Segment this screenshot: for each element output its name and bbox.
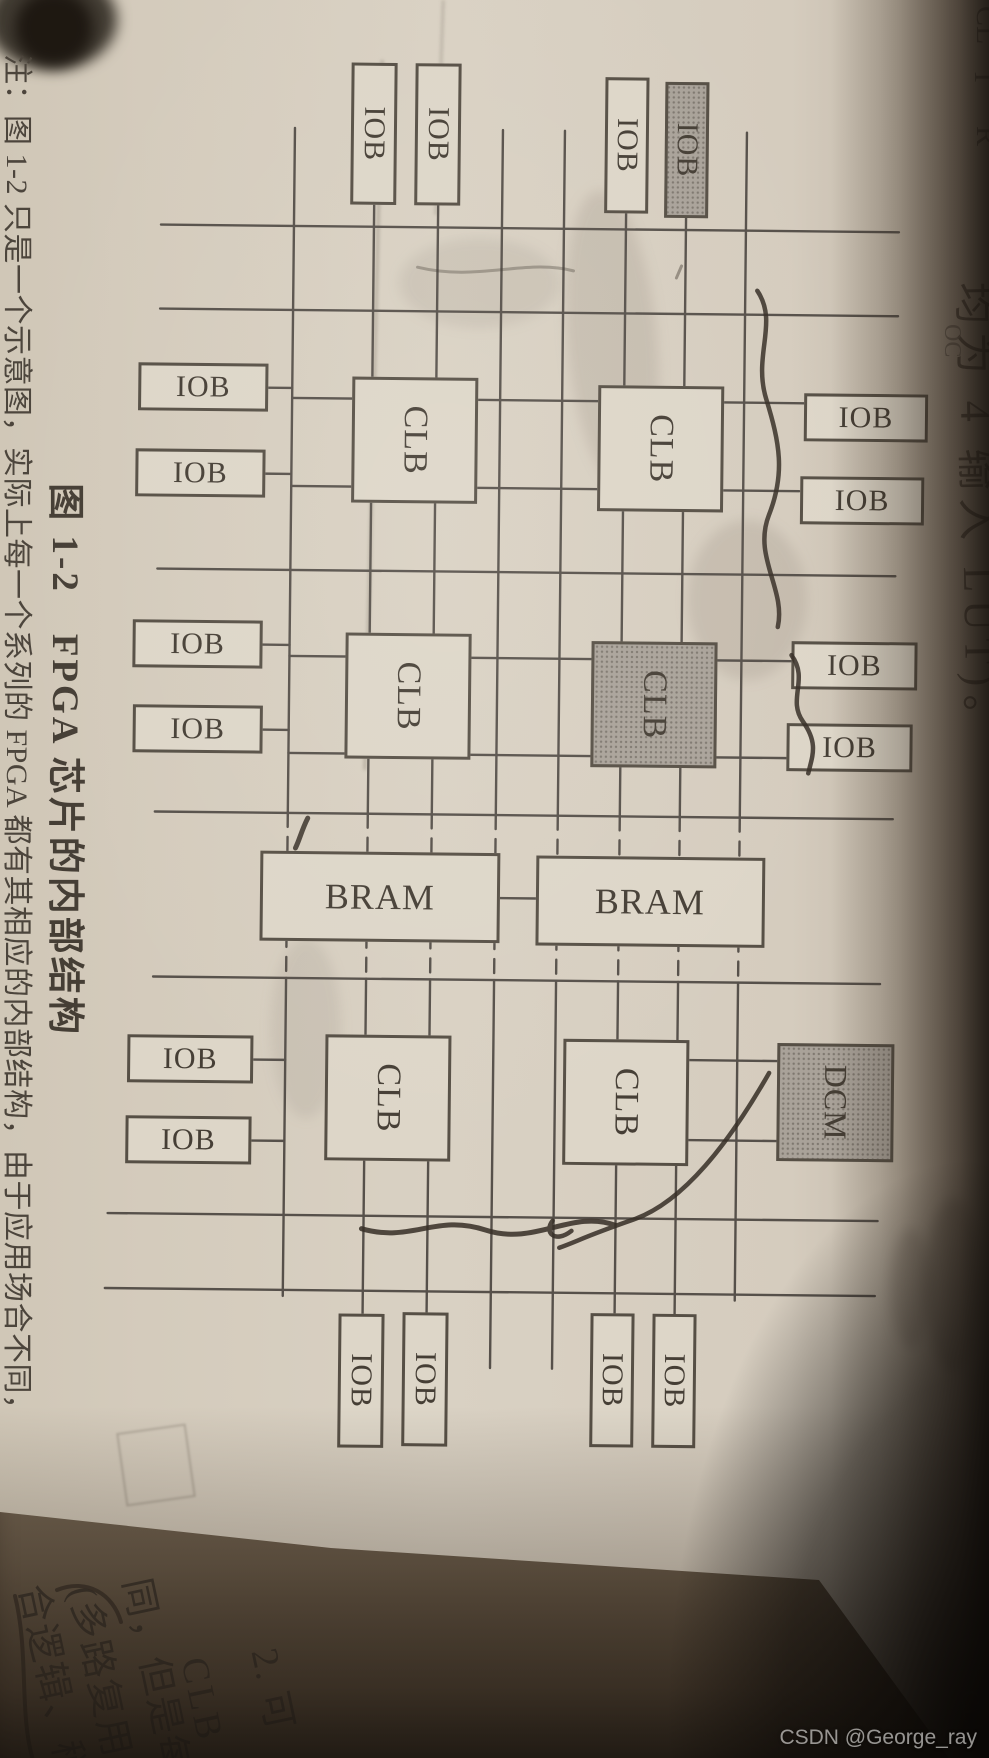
- pen-scribble: [417, 266, 573, 274]
- cutoff-text-fragment: CL: [969, 6, 989, 44]
- cutoff-text-fragment: T: [967, 68, 989, 86]
- cutoff-text-fragment: R: [969, 126, 989, 146]
- pen-squiggle: [754, 291, 783, 627]
- diagram: IOBIOBIOBIOBIOBIOBIOBIOBIOBIOBIOBIOBIOBI…: [0, 0, 989, 1758]
- pen-squiggle: [790, 655, 814, 773]
- book-page: IOBIOBIOBIOBIOBIOBIOBIOBIOBIOBIOBIOBIOBI…: [0, 0, 989, 1758]
- figure-note: 注：图 1-2 只是一个示意图，实际上每一个系列的 FPGA 都有其相应的内部结…: [0, 54, 42, 1425]
- pen-squiggle: [361, 1219, 615, 1236]
- book-photo: IOBIOBIOBIOBIOBIOBIOBIOBIOBIOBIOBIOBIOBI…: [0, 0, 989, 1758]
- cutoff-text-fragment: OC: [938, 324, 965, 357]
- pen-mark: [295, 818, 307, 848]
- watermark: CSDN @George_ray: [779, 1726, 977, 1750]
- pen-mark: [676, 266, 681, 278]
- pen-annotations: [0, 0, 989, 1758]
- figure-caption: 图 1-2 FPGA 芯片的内部结构: [42, 430, 96, 1090]
